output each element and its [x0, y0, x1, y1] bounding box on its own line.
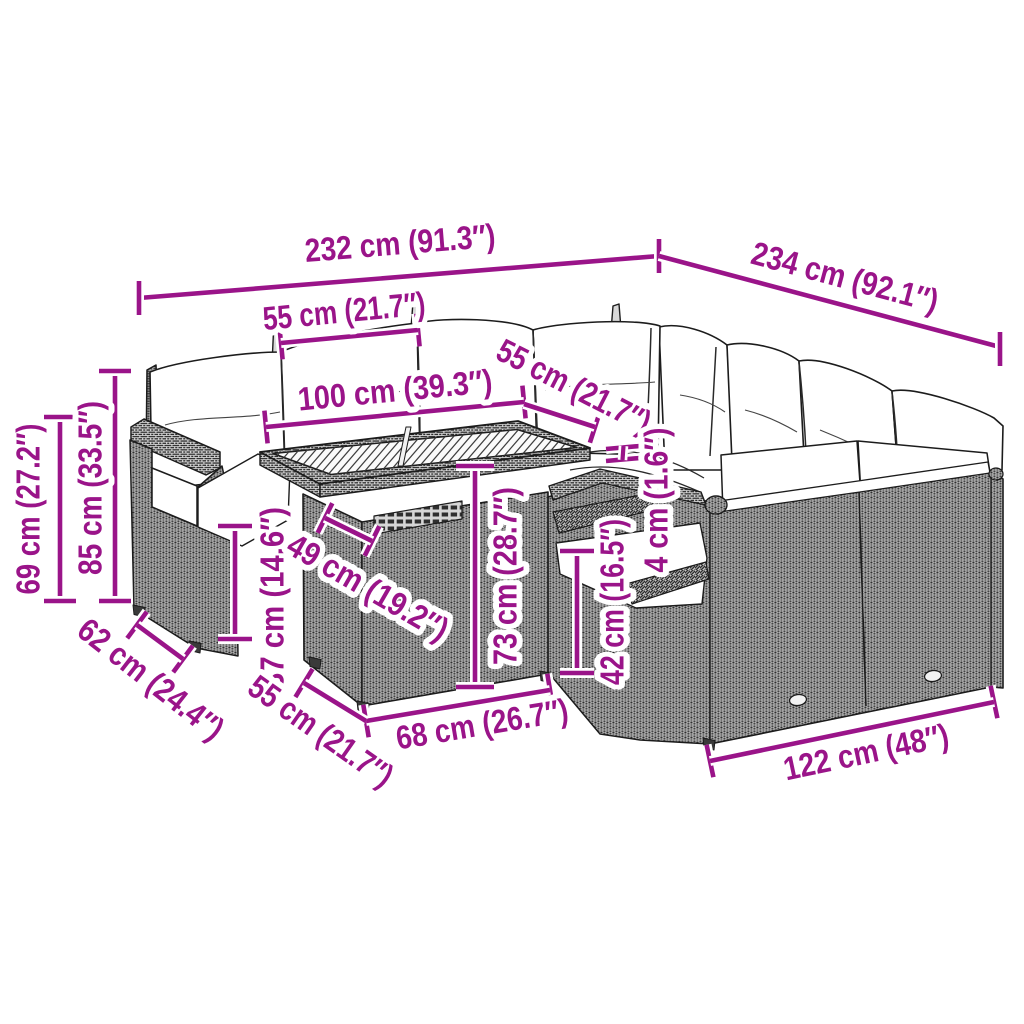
svg-text:73 cm (28.7″): 73 cm (28.7″) — [486, 487, 523, 665]
svg-text:4 cm (1.6″): 4 cm (1.6″) — [637, 428, 674, 573]
svg-text:37 cm (14.6″): 37 cm (14.6″) — [253, 507, 290, 689]
svg-text:69 cm (27.2″): 69 cm (27.2″) — [9, 424, 46, 595]
svg-text:85 cm (33.5″): 85 cm (33.5″) — [71, 401, 108, 575]
svg-text:42 cm (16.5″): 42 cm (16.5″) — [593, 519, 630, 685]
